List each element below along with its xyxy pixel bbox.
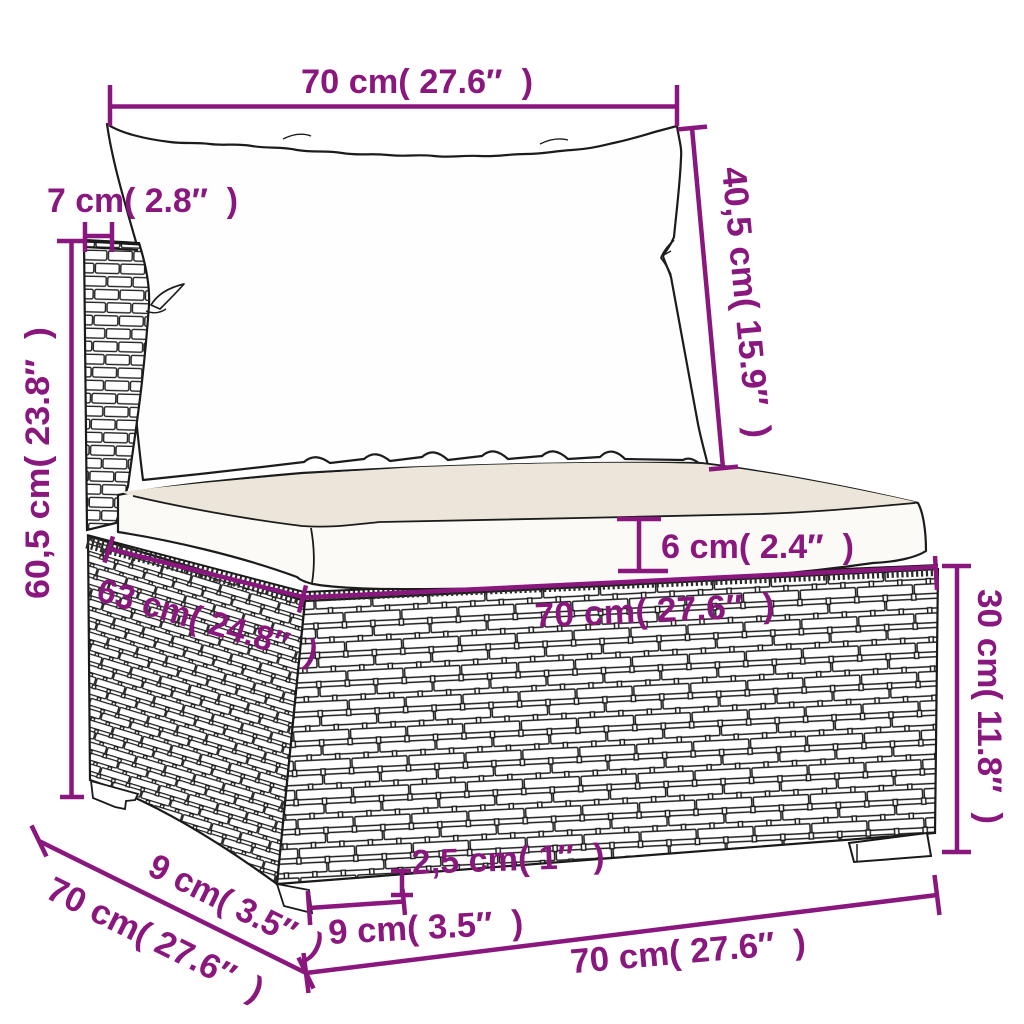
- svg-text:60,5 cm( 23.8″ ): 60,5 cm( 23.8″ ): [19, 327, 57, 599]
- svg-text:6 cm( 2.4″ ): 6 cm( 2.4″ ): [661, 528, 854, 566]
- svg-text:7 cm( 2.8″ ): 7 cm( 2.8″ ): [47, 182, 238, 220]
- svg-text:70 cm( 27.6″ ): 70 cm( 27.6″ ): [301, 63, 533, 101]
- svg-text:2,5 cm( 1″ ): 2,5 cm( 1″ ): [411, 837, 605, 882]
- svg-text:30 cm( 11.8″ ): 30 cm( 11.8″ ): [970, 589, 1008, 824]
